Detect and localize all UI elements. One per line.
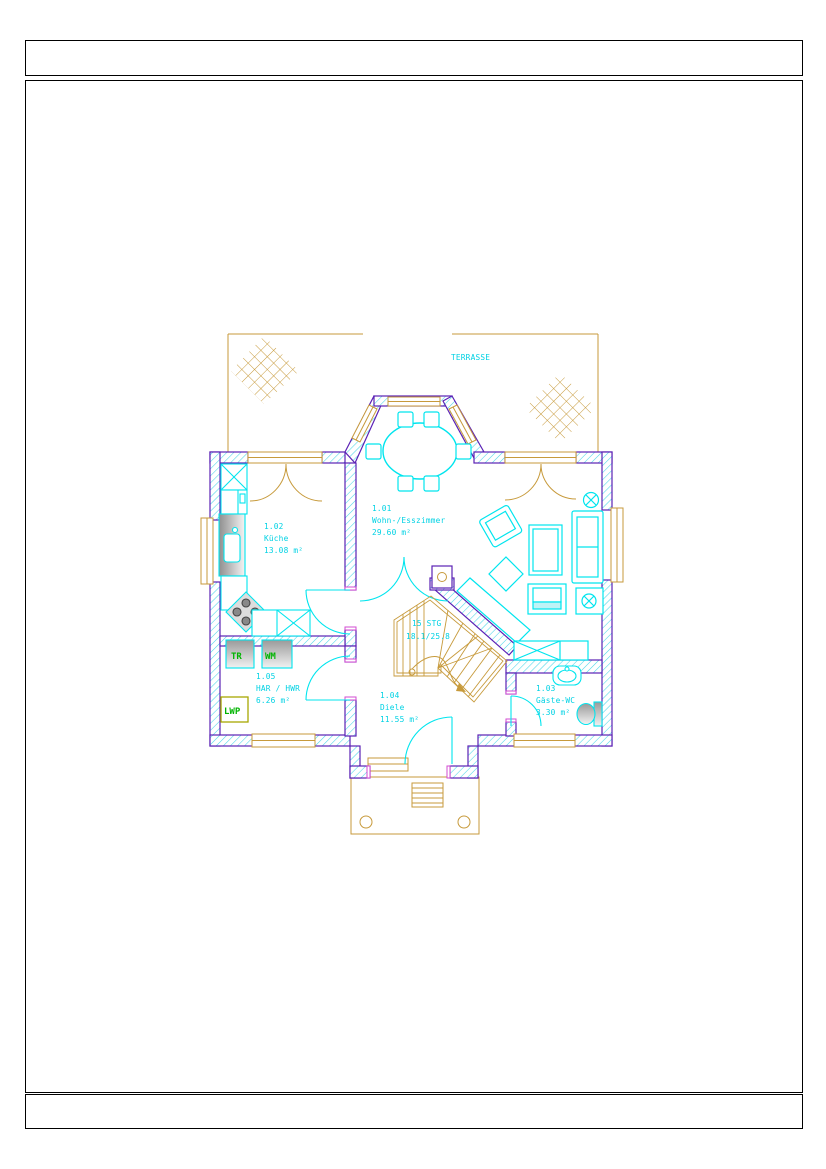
stair-direction-arrow (456, 683, 466, 692)
kitchen-top-window (248, 452, 322, 501)
washbasin (553, 666, 581, 685)
sink-counter (219, 514, 245, 576)
room-name-hall: Diele (380, 703, 405, 712)
sofa (572, 511, 603, 583)
side-table (529, 525, 562, 575)
room-name-kitchen: Küche (264, 534, 289, 543)
armchair (479, 505, 523, 548)
sink-basin (224, 534, 240, 562)
room-area-hwr: 6.26 m² (256, 696, 290, 705)
stair-ratio-label: 18.1/25.8 (406, 632, 450, 641)
dining-table (383, 423, 457, 479)
hwr-bottom-window (252, 734, 315, 747)
base-cabinet-row (252, 610, 310, 636)
floor-lamp-bottom (576, 588, 603, 614)
floor-plan-drawing: TR WM LWP (0, 0, 826, 1169)
terrace-planting-hatch-right (525, 373, 596, 443)
room-number-wc: 1.03 (536, 684, 556, 693)
stair-walkline (412, 657, 460, 688)
room-number-hall: 1.04 (380, 691, 400, 700)
fridge-cabinet (221, 490, 247, 514)
dryer-label: TR (231, 652, 242, 662)
wardrobe (514, 641, 588, 660)
terrace-planting-hatch-left (231, 336, 299, 404)
living-right-window (611, 508, 623, 582)
room-name-hwr: HAR / HWR (256, 684, 300, 693)
kitchen-left-window (201, 518, 213, 584)
room-area-hall: 11.55 m² (380, 715, 419, 724)
heatpump-label: LWP (224, 707, 241, 717)
kitchen-door-arc (306, 590, 350, 634)
room-name-living: Wohn-/Esszimmer (372, 516, 446, 525)
washer-label: WM (265, 652, 276, 662)
terrace-label: TERRASSE (451, 353, 490, 362)
room-number-hwr: 1.05 (256, 672, 276, 681)
terrace-french-door (505, 452, 576, 500)
room-area-living: 29.60 m² (372, 528, 411, 537)
fireplace (432, 566, 452, 588)
toilet (577, 702, 602, 726)
stair-count-label: 15 STG (412, 619, 441, 628)
utility-appliances: TR WM LWP (221, 640, 292, 722)
faucet (233, 528, 238, 533)
front-door-arc (405, 717, 452, 764)
tall-cabinet (221, 464, 247, 490)
room-name-wc: Gäste-WC (536, 696, 575, 705)
room-area-kitchen: 13.08 m² (264, 546, 303, 555)
door-threshold (368, 758, 408, 771)
room-area-wc: 3.30 m² (536, 708, 570, 717)
tv-bench (528, 584, 566, 614)
drawing-sheet: TR WM LWP (0, 0, 826, 1169)
floor-lamp-top (584, 493, 599, 508)
coffee-table (489, 557, 523, 591)
wc-bottom-window (514, 734, 575, 747)
hwr-door-arc (306, 656, 350, 700)
bay-window-top (388, 397, 440, 406)
room-number-kitchen: 1.02 (264, 522, 284, 531)
room-number-living: 1.01 (372, 504, 392, 513)
